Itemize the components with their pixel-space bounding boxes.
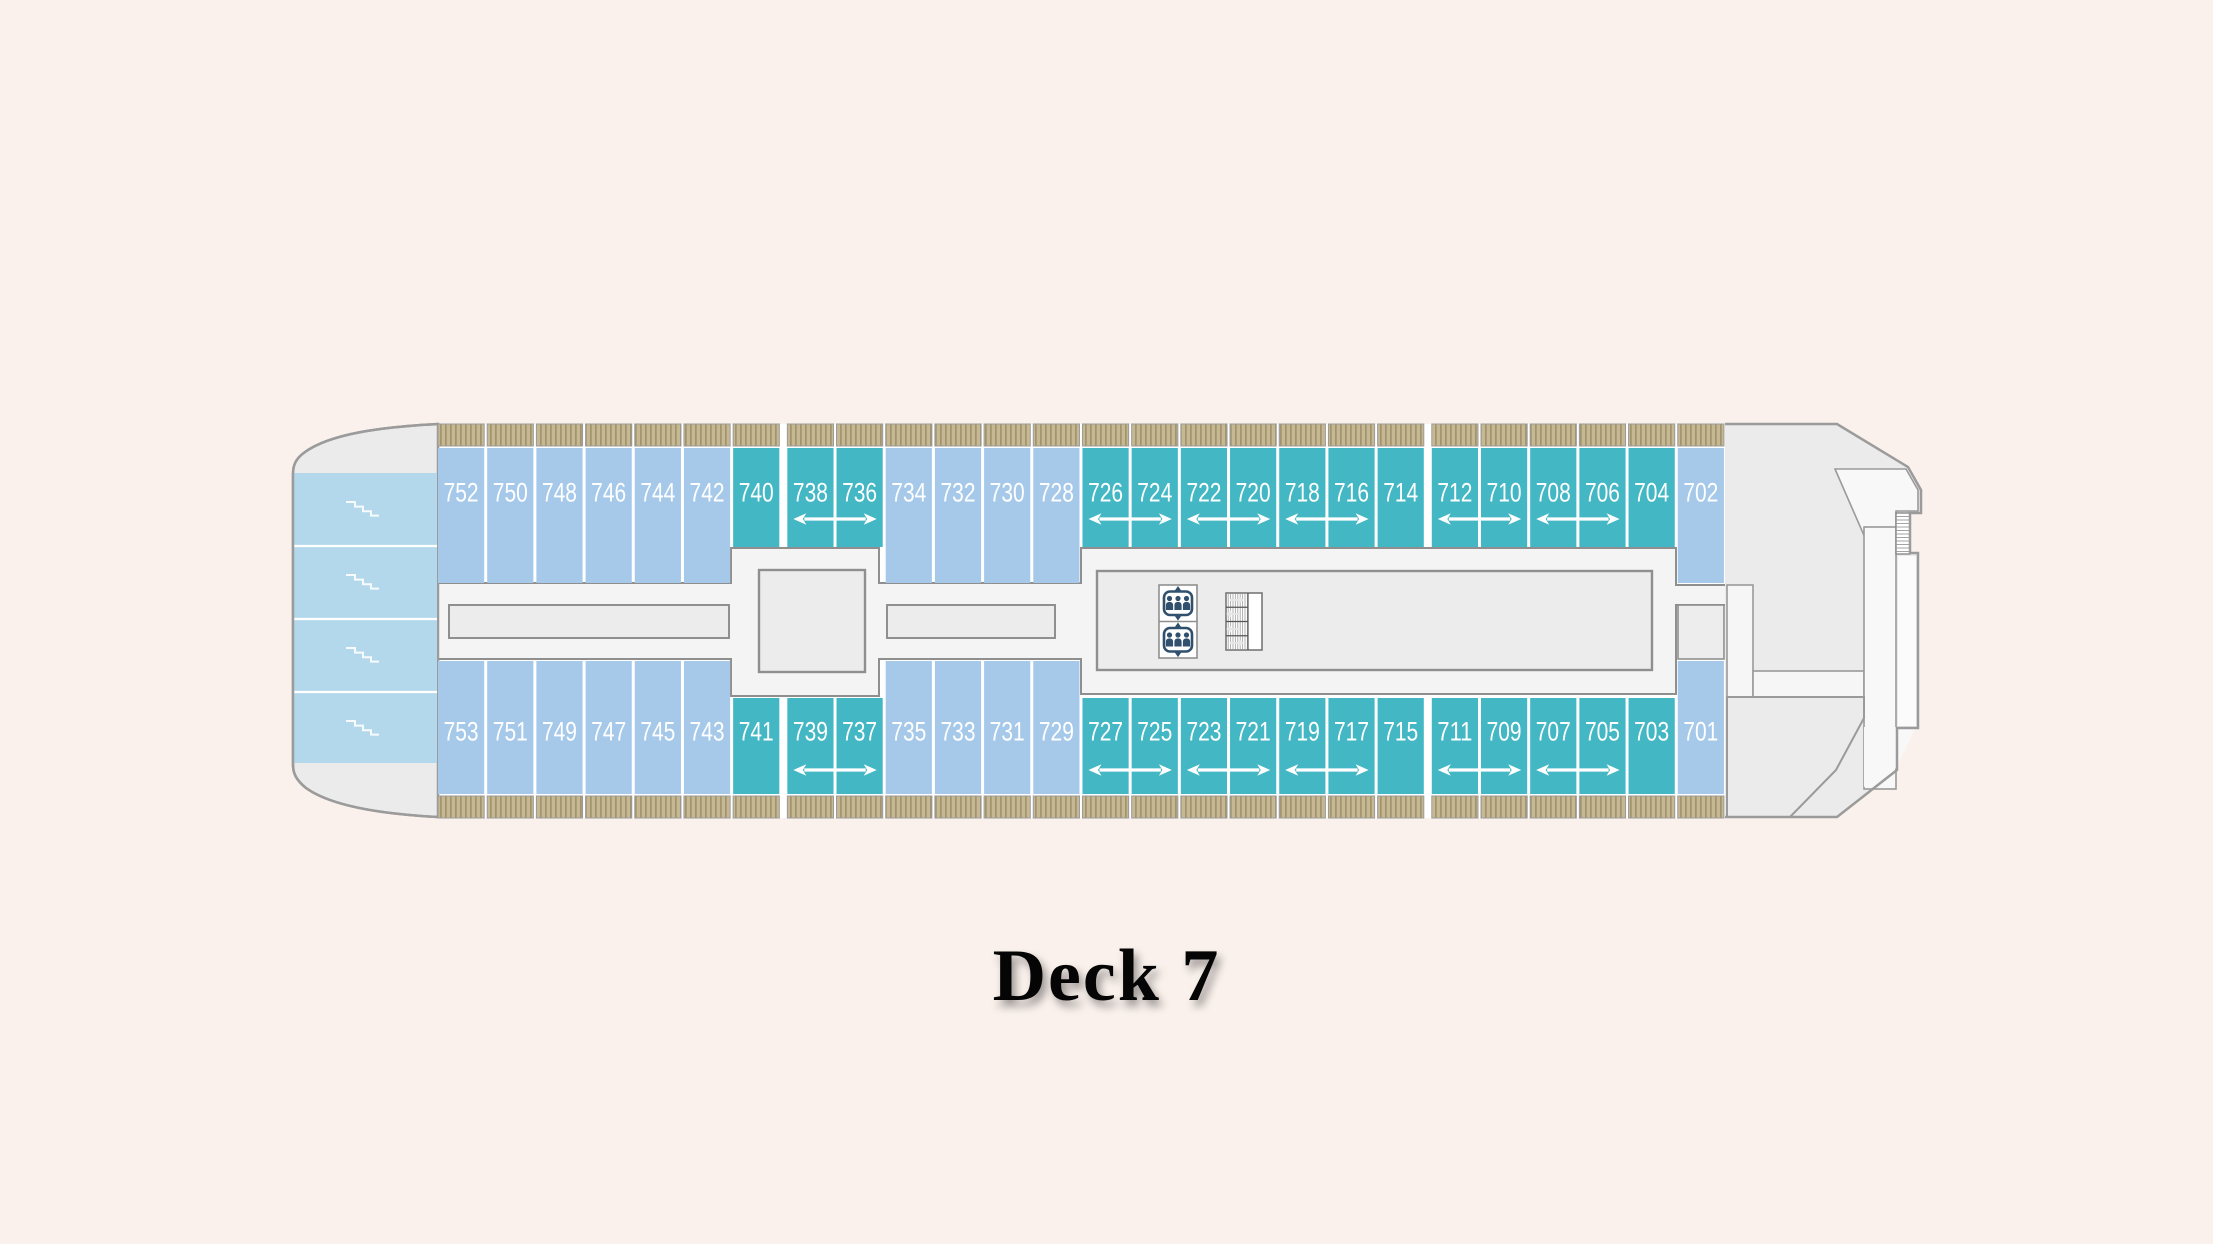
cabin-number-720: 720 (1236, 478, 1271, 508)
balcony-749 (536, 796, 582, 818)
balcony-746 (586, 424, 632, 446)
balcony-751 (487, 796, 533, 818)
cabin-number-737: 737 (842, 717, 877, 747)
stairs-icon (1226, 593, 1262, 650)
cabin-number-731: 731 (990, 717, 1025, 747)
forward-vestibule (1678, 605, 1724, 659)
balcony-715 (1378, 796, 1424, 818)
cabin-number-743: 743 (690, 717, 725, 747)
cabin-number-740: 740 (739, 478, 774, 508)
cabin-number-715: 715 (1383, 717, 1418, 747)
balcony-727 (1082, 796, 1128, 818)
balcony-703 (1629, 796, 1675, 818)
cabin-number-751: 751 (493, 717, 528, 747)
balcony-708 (1530, 424, 1576, 446)
cabin-750[interactable] (487, 448, 533, 583)
cabin-number-738: 738 (793, 478, 828, 508)
balcony-704 (1629, 424, 1675, 446)
cabin-number-741: 741 (739, 717, 774, 747)
balcony-737 (837, 796, 883, 818)
balcony-705 (1579, 796, 1625, 818)
cabin-number-722: 722 (1186, 478, 1221, 508)
cabin-number-748: 748 (542, 478, 577, 508)
inner-block-mid (887, 605, 1055, 638)
balcony-743 (684, 796, 730, 818)
balcony-717 (1328, 796, 1374, 818)
cabin-number-727: 727 (1088, 717, 1123, 747)
cabin-number-702: 702 (1683, 478, 1718, 508)
cabin-732[interactable] (935, 448, 981, 583)
balcony-709 (1481, 796, 1527, 818)
balcony-714 (1378, 424, 1424, 446)
cabin-number-747: 747 (591, 717, 626, 747)
balcony-726 (1082, 424, 1128, 446)
elevator-icon (1159, 585, 1197, 658)
balcony-719 (1279, 796, 1325, 818)
cabin-number-706: 706 (1585, 478, 1620, 508)
cabin-number-704: 704 (1634, 478, 1669, 508)
balcony-707 (1530, 796, 1576, 818)
cabin-number-736: 736 (842, 478, 877, 508)
cabin-number-733: 733 (940, 717, 975, 747)
cabin-number-707: 707 (1536, 717, 1571, 747)
balcony-723 (1181, 796, 1227, 818)
balcony-711 (1432, 796, 1478, 818)
cabin-number-703: 703 (1634, 717, 1669, 747)
cabin-number-708: 708 (1536, 478, 1571, 508)
balcony-702 (1678, 424, 1724, 446)
cabin-number-723: 723 (1186, 717, 1221, 747)
balcony-701 (1678, 796, 1724, 818)
cabin-number-744: 744 (640, 478, 675, 508)
cabin-number-721: 721 (1236, 717, 1271, 747)
cabin-number-726: 726 (1088, 478, 1123, 508)
cabin-number-717: 717 (1334, 717, 1369, 747)
cabin-number-729: 729 (1039, 717, 1074, 747)
cabin-number-701: 701 (1683, 717, 1718, 747)
balcony-732 (935, 424, 981, 446)
cabin-number-718: 718 (1285, 478, 1320, 508)
cabin-number-745: 745 (640, 717, 675, 747)
balcony-742 (684, 424, 730, 446)
deck-title: Deck 7 (0, 934, 2213, 1019)
cabin-number-705: 705 (1585, 717, 1620, 747)
inner-block-aft (449, 605, 729, 638)
balcony-734 (886, 424, 932, 446)
cabin-number-752: 752 (444, 478, 479, 508)
bow-cross-corridor (1753, 671, 1864, 697)
balcony-730 (984, 424, 1030, 446)
cabin-730[interactable] (984, 448, 1030, 583)
bow-entry-corridor (1727, 585, 1753, 697)
balcony-745 (635, 796, 681, 818)
cabin-number-742: 742 (690, 478, 725, 508)
cabin-742[interactable] (684, 448, 730, 583)
balcony-729 (1033, 796, 1079, 818)
cabin-number-710: 710 (1487, 478, 1522, 508)
balcony-725 (1132, 796, 1178, 818)
cabin-number-709: 709 (1487, 717, 1522, 747)
cabin-number-725: 725 (1137, 717, 1172, 747)
balcony-718 (1279, 424, 1325, 446)
balcony-748 (536, 424, 582, 446)
balcony-724 (1132, 424, 1178, 446)
balcony-733 (935, 796, 981, 818)
cabin-number-732: 732 (940, 478, 975, 508)
balcony-722 (1181, 424, 1227, 446)
deck-plan: 7527507487467447427407387367347327307287… (0, 0, 2213, 1244)
balcony-739 (787, 796, 833, 818)
balcony-721 (1230, 796, 1276, 818)
balcony-753 (438, 796, 484, 818)
balcony-752 (438, 424, 484, 446)
lobby-square (759, 570, 865, 672)
bow-stairs-icon (1896, 513, 1910, 554)
cabin-752[interactable] (438, 448, 484, 583)
balcony-712 (1432, 424, 1478, 446)
bow-side-strip (1898, 556, 1916, 726)
balcony-741 (733, 796, 779, 818)
balcony-735 (886, 796, 932, 818)
cabin-number-724: 724 (1137, 478, 1172, 508)
cabin-734[interactable] (886, 448, 932, 583)
cabin-728[interactable] (1033, 448, 1079, 583)
cabin-number-749: 749 (542, 717, 577, 747)
cabin-number-728: 728 (1039, 478, 1074, 508)
cabin-744[interactable] (635, 448, 681, 583)
balcony-736 (837, 424, 883, 446)
cabin-number-739: 739 (793, 717, 828, 747)
cabin-748[interactable] (536, 448, 582, 583)
balcony-710 (1481, 424, 1527, 446)
deck-plan-page: 7527507487467447427407387367347327307287… (0, 0, 2213, 1244)
cabin-702[interactable] (1678, 448, 1724, 583)
cabin-number-750: 750 (493, 478, 528, 508)
balcony-740 (733, 424, 779, 446)
balcony-706 (1579, 424, 1625, 446)
cabin-746[interactable] (586, 448, 632, 583)
balcony-747 (586, 796, 632, 818)
balcony-750 (487, 424, 533, 446)
cabin-number-734: 734 (891, 478, 926, 508)
cabin-number-714: 714 (1383, 478, 1418, 508)
cabin-number-735: 735 (891, 717, 926, 747)
cabin-number-712: 712 (1437, 478, 1472, 508)
cabin-number-716: 716 (1334, 478, 1369, 508)
cabin-number-730: 730 (990, 478, 1025, 508)
balcony-744 (635, 424, 681, 446)
balcony-720 (1230, 424, 1276, 446)
cabin-number-711: 711 (1437, 717, 1472, 747)
balcony-738 (787, 424, 833, 446)
balcony-728 (1033, 424, 1079, 446)
cabin-number-719: 719 (1285, 717, 1320, 747)
cabin-number-753: 753 (444, 717, 479, 747)
balcony-731 (984, 796, 1030, 818)
balcony-716 (1328, 424, 1374, 446)
cabin-number-746: 746 (591, 478, 626, 508)
